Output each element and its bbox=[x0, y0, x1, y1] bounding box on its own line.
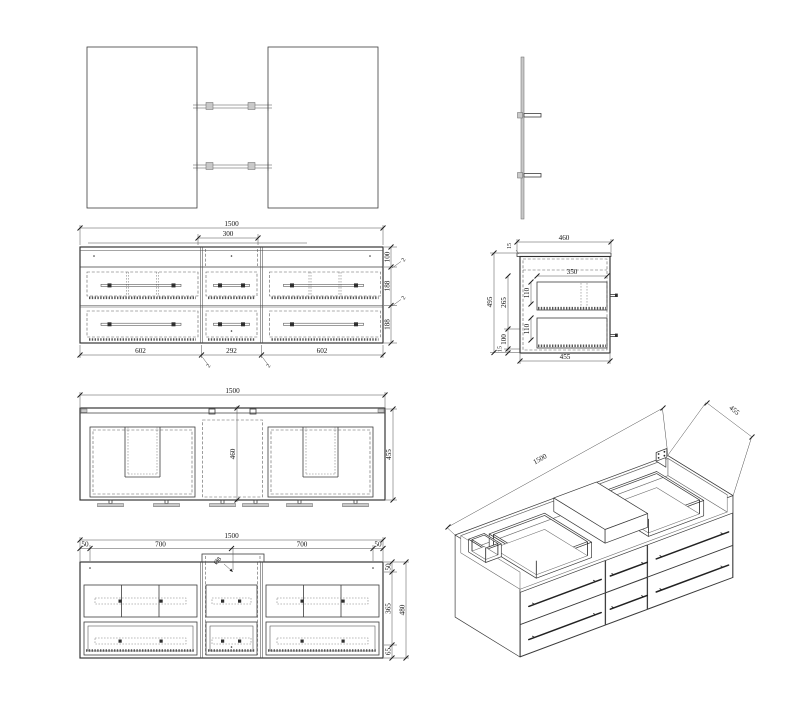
dim-side-counter-thickness: 15 bbox=[507, 243, 513, 249]
dim-bottom-span-left: 700 bbox=[155, 541, 166, 549]
cabinet-drilling-elevation: Ø8 1500 50 700 700 50 50 365 65 480 bbox=[78, 532, 410, 661]
dim-front-gap-b1: 2 bbox=[206, 363, 213, 369]
cabinet-isometric-view bbox=[455, 449, 733, 658]
cabinet-plan-view: 1500 455 460 bbox=[78, 387, 398, 507]
dim-plan-overall-width: 1500 bbox=[225, 387, 240, 395]
mirror-connector-bracket bbox=[248, 103, 255, 110]
cabinet-feet bbox=[98, 500, 369, 507]
dim-front-center-width: 300 bbox=[223, 230, 234, 238]
dim-side-bottom-width: 455 bbox=[560, 353, 571, 361]
dim-iso-depth: 455 bbox=[728, 404, 742, 417]
mirror-side-view bbox=[518, 57, 542, 219]
dim-bottom-edge-right: 50 bbox=[374, 541, 382, 549]
dim-bottom-top-offset: 50 bbox=[385, 563, 393, 571]
dim-front-gap-top: 2 bbox=[401, 257, 408, 263]
dim-iso-length: 1500 bbox=[532, 452, 549, 466]
technical-drawing-sheet: 1500 300 100 188 188 2 2 602 292 602 2 2… bbox=[0, 0, 800, 717]
dim-side-lower: 100 bbox=[500, 334, 508, 345]
dim-plan-depth: 455 bbox=[385, 449, 393, 460]
dim-front-gap-mid: 2 bbox=[401, 295, 408, 301]
dim-side-drawer1-inner: 110 bbox=[523, 287, 531, 298]
mirror-connector-bracket bbox=[248, 163, 255, 170]
mirror-connector-bracket bbox=[206, 163, 213, 170]
dim-side-upper-cavity: 265 bbox=[500, 297, 508, 308]
dim-front-left-section: 602 bbox=[135, 347, 146, 355]
dim-front-gap-b2: 2 bbox=[266, 363, 273, 369]
dim-bottom-overall-height: 480 bbox=[399, 604, 407, 615]
dim-bottom-edge-left: 50 bbox=[81, 541, 89, 549]
dim-side-inner-width: 350 bbox=[567, 268, 578, 276]
dim-side-top-width: 460 bbox=[559, 234, 570, 242]
dim-front-center-section: 292 bbox=[226, 347, 237, 355]
drawing-svg: 1500 300 100 188 188 2 2 602 292 602 2 2… bbox=[0, 0, 800, 717]
dim-front-drawer2: 188 bbox=[384, 319, 392, 330]
dim-bottom-drawer-zone: 365 bbox=[385, 603, 393, 614]
mirror-front-view bbox=[87, 47, 378, 208]
dim-side-bottom-thickness: 15 bbox=[498, 346, 504, 352]
dim-side-drawer2-inner: 110 bbox=[523, 323, 531, 334]
dim-front-top-band: 100 bbox=[384, 251, 392, 262]
dim-front-overall-width: 1500 bbox=[224, 220, 239, 228]
dim-bottom-span-right: 700 bbox=[297, 541, 308, 549]
dim-side-overall-height: 495 bbox=[486, 296, 494, 307]
dim-plan-counter-depth: 460 bbox=[229, 448, 237, 459]
dim-front-drawer1: 188 bbox=[384, 280, 392, 291]
dim-front-right-section: 602 bbox=[317, 347, 328, 355]
dim-bottom-base-zone: 65 bbox=[385, 648, 393, 656]
cabinet-side-section: 460 15 350 110 110 265 100 15 495 455 bbox=[486, 234, 618, 364]
mirror-connector-bracket bbox=[206, 103, 213, 110]
dim-hole-diameter: Ø8 bbox=[213, 556, 223, 567]
cabinet-front-elevation: 1500 300 100 188 188 2 2 602 292 602 2 2 bbox=[78, 220, 408, 369]
dim-bottom-overall-width: 1500 bbox=[224, 532, 239, 540]
